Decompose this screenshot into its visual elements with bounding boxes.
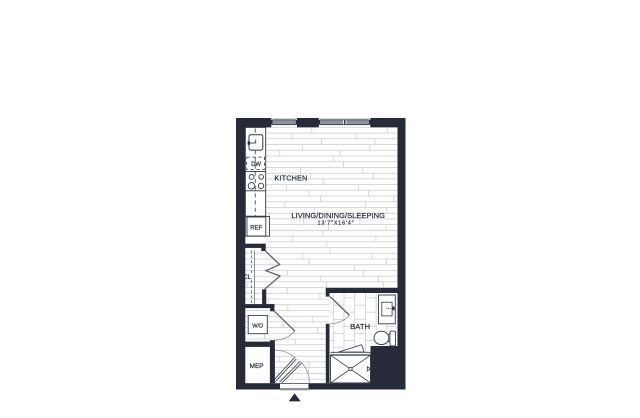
svg-text:REF: REF	[250, 225, 262, 232]
svg-text:KITCHEN: KITCHEN	[274, 173, 307, 182]
svg-text:DW: DW	[251, 162, 261, 168]
svg-text:LIVING/DINING/SLEEPING: LIVING/DINING/SLEEPING	[291, 211, 385, 220]
svg-text:BATH: BATH	[350, 322, 370, 331]
svg-text:W/D: W/D	[252, 324, 263, 330]
svg-text:MEP: MEP	[250, 363, 264, 370]
svg-text:13'7"X16'4": 13'7"X16'4"	[318, 221, 355, 227]
